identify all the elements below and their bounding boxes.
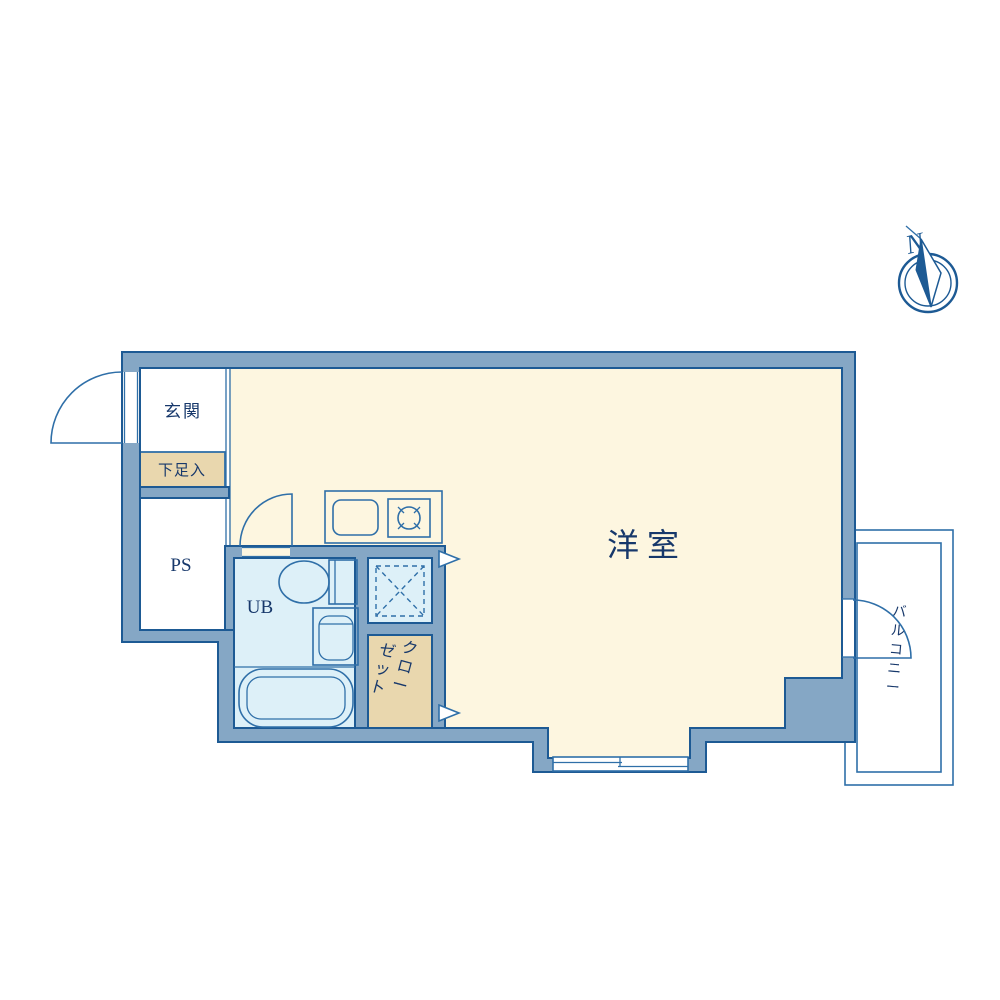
pipe-space-label: PS [170,555,191,576]
shoe-storage-label: 下足入 [158,462,206,479]
entrance-label: 玄関 [164,402,202,421]
unit-bath-label: UB [247,597,273,618]
bath-door-opening [242,548,290,557]
entrance-door-opening [123,372,139,443]
wall-below-shoe-storage [130,487,229,498]
balcony-door-opening [842,599,855,657]
unit-bath-floor [234,552,355,728]
sliding-window [553,757,688,771]
washer-space-floor [368,552,432,623]
floor-plan: N 玄関 下足入 PS UB 洋室 クロー ゼット バルコニー [0,0,1000,1000]
compass-north-label: N [901,226,929,260]
main-room-label: 洋室 [607,527,687,563]
entrance-door-swing [51,372,122,443]
floor-plan-page: N 玄関 下足入 PS UB 洋室 クロー ゼット バルコニー [0,0,1000,1000]
compass: N [899,226,957,312]
